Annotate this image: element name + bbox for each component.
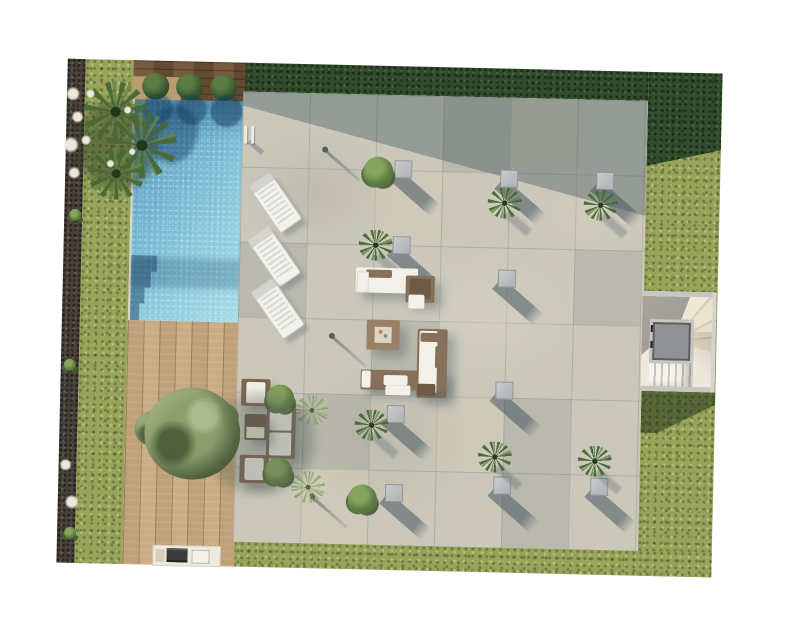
cube-planter [495, 381, 513, 399]
pool-corner-step [131, 255, 157, 272]
cube-planter [392, 236, 410, 254]
cube-planter [394, 160, 412, 178]
fire-table-decor [379, 330, 383, 334]
cube-planter [596, 172, 614, 190]
pool-corner-step [131, 271, 151, 287]
shaft-mark [650, 341, 652, 348]
sofa-upper-bolster [366, 269, 392, 278]
cube-planter [385, 484, 403, 502]
plan-render [53, 59, 722, 578]
pool-corner-step [130, 287, 144, 303]
staircase [640, 291, 716, 393]
ottoman [408, 294, 424, 308]
paver-dark [573, 249, 642, 326]
l-sofa-armrest [361, 370, 370, 387]
ottoman [385, 385, 410, 396]
ladder-rail [244, 126, 247, 144]
pool-ladder [242, 126, 256, 144]
l-sofa-cushion [417, 384, 435, 396]
sofa-upper-arm [357, 271, 369, 292]
bbq-grill [166, 548, 187, 562]
bbq-sink [191, 550, 209, 564]
site-plan-image [0, 0, 800, 640]
l-sofa-headrest [420, 333, 444, 343]
l-sofa-cushion-white [383, 375, 407, 386]
cube-planter [387, 405, 405, 423]
l-sofa-cushion [435, 346, 445, 368]
bbq-side [155, 549, 164, 562]
pool-corner-step [130, 303, 139, 320]
fire-table [366, 320, 400, 351]
lift-shaft [649, 319, 694, 364]
cube-planter [500, 170, 518, 188]
cube-planter [498, 269, 516, 287]
shaft-mark [651, 325, 653, 332]
ladder-rail [251, 126, 254, 144]
bbq-counter [152, 545, 220, 568]
fire-table-decor [384, 334, 388, 338]
